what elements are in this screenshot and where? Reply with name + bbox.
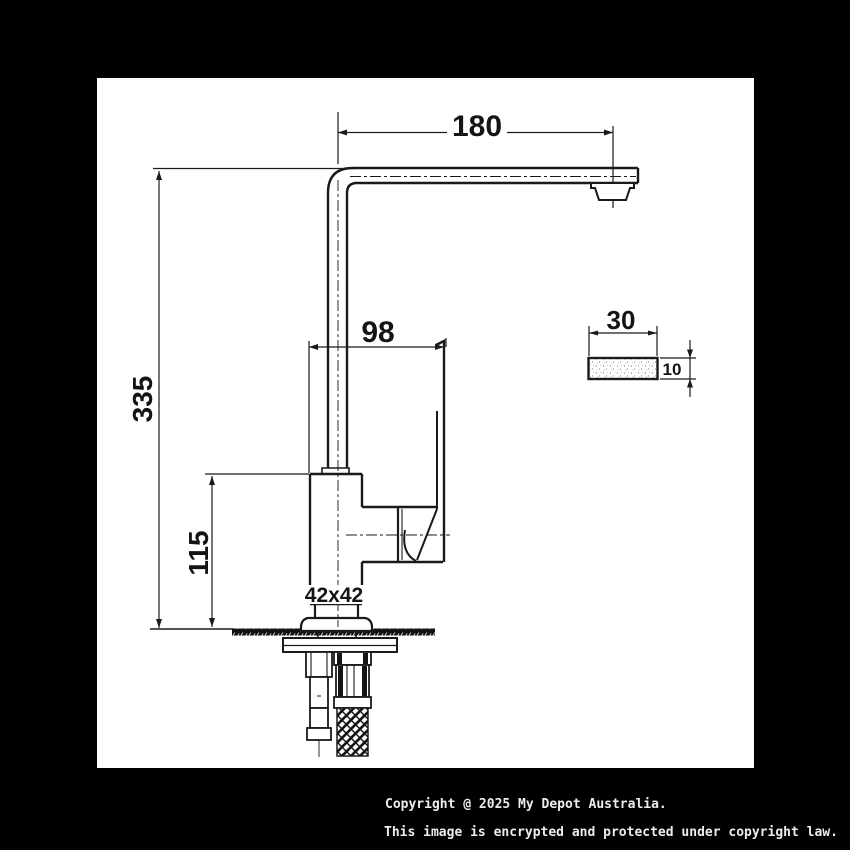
dim-label-deck-to-spout: 115 xyxy=(183,530,214,575)
drawing-sheet: 180 335 98 115 42x42 30 10 xyxy=(97,78,754,768)
deck-section-detail xyxy=(589,358,658,379)
faucet-technical-drawing: 180 335 98 115 42x42 30 10 xyxy=(97,78,754,768)
faucet-outline xyxy=(283,168,638,757)
countertop xyxy=(150,629,435,636)
copyright-line: Copyright @ 2025 My Depot Australia. xyxy=(385,797,667,812)
aerator-nozzle xyxy=(591,184,634,200)
braided-hose-section xyxy=(337,708,368,756)
flexible-hose xyxy=(334,652,371,756)
dim-label-section-thickness: 10 xyxy=(663,360,682,379)
dim-label-section-width: 30 xyxy=(607,305,636,335)
dimension-98 xyxy=(309,338,446,473)
cartridge-housing xyxy=(398,507,402,562)
dim-label-body-section: 42x42 xyxy=(305,584,363,607)
mounting-stud xyxy=(306,652,332,757)
handle-lever xyxy=(404,341,444,562)
copyright-protection-line: This image is encrypted and protected un… xyxy=(384,825,838,840)
dim-label-body-to-handle: 98 xyxy=(361,316,394,349)
riser-collar xyxy=(322,468,349,473)
mounting-plate xyxy=(283,638,397,652)
dim-label-overall-height: 335 xyxy=(127,376,158,423)
centerlines xyxy=(338,177,636,628)
dim-label-spout-reach: 180 xyxy=(452,110,502,143)
escutcheon-flange xyxy=(301,618,372,631)
dimension-115 xyxy=(205,474,309,627)
